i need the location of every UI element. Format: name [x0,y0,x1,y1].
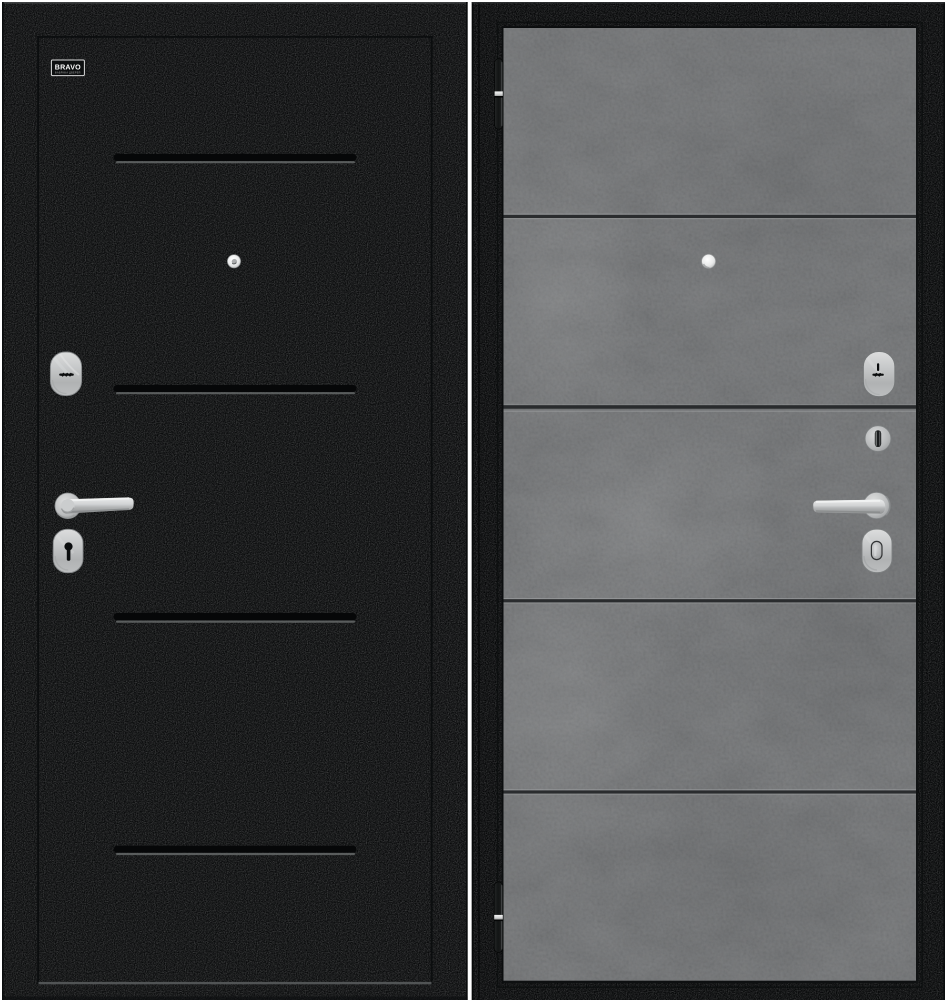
svg-text:BRAVO: BRAVO [55,64,81,72]
svg-text:ФАБРИКА ДВЕРЕЙ: ФАБРИКА ДВЕРЕЙ [55,72,81,75]
